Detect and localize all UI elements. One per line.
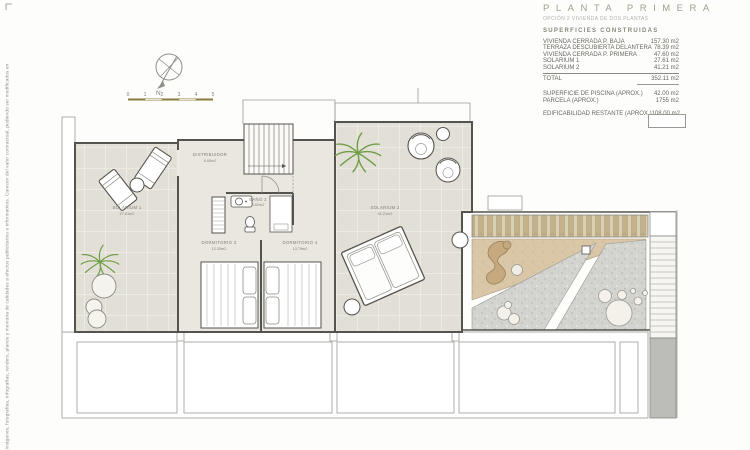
table-row: SOLARIUM 2 41.21 m2 [543,65,679,71]
solarium2-room: SOLARIUM 2 41.21m2 [335,122,472,332]
lower-floor-outline [62,332,648,418]
scale-bar: 0 1 2 3 4 5 [127,92,215,101]
areas-table-header: SUPERFICIES CONSTRUIDAS [543,28,743,34]
drain-box [582,246,590,254]
total-row: TOTAL 352.11 m2 [543,76,679,82]
sheet-title: PLANTA PRIMERA [543,3,743,14]
room-area: 27.61m2 [120,212,135,216]
side-table [344,299,360,315]
round-lounger [436,158,460,182]
room-area: 13.79m2 [293,247,308,251]
interior-block: DISTRIBUIDOR 5.00m2 BAÑO 2 3.52m2 [177,124,336,332]
legend-box [648,114,686,128]
wardrobe [212,197,225,233]
total-underline [637,84,679,85]
bed-dormitorio3 [201,262,258,328]
room-label: DORMITORIO 3 [201,240,236,245]
svg-text:3: 3 [178,92,181,98]
bed-dormitorio4 [264,262,321,328]
side-table [130,178,144,192]
crop-mark [6,4,12,10]
room-label: SOLARIUM 2 [370,205,399,210]
room-label: BAÑO 2 [249,197,267,202]
compass-icon: N [156,54,182,97]
shower [270,196,292,232]
room-label: DORMITORIO 4 [282,240,317,245]
sliding-door-opening [177,150,179,176]
room-area: 5.00m2 [204,159,217,163]
table-divider [543,73,679,74]
svg-text:0: 0 [127,92,130,98]
svg-text:2: 2 [161,92,164,98]
solarium1-room: SOLARIUM 1 27.61m2 [75,143,178,332]
table-row: PARCELA (APROX.) 1755 m2 [543,98,679,104]
floor-plan-sheet: Imágenes, fotografías, infografías, rend… [0,0,750,450]
side-table [452,232,468,248]
sheet-subtitle: OPCIÓN 2 VIVIENDA DE DOS PLANTAS [543,16,743,22]
round-lounger [408,133,434,159]
room-area: 41.21m2 [378,212,393,216]
svg-text:4: 4 [195,92,198,98]
svg-text:1: 1 [144,92,147,98]
room-area: 12.20m2 [212,247,227,251]
title-block: PLANTA PRIMERA OPCIÓN 2 VIVIENDA DE DOS … [543,3,743,118]
room-label: DISTRIBUIDOR [193,152,227,157]
terrace-garden [462,212,676,330]
svg-text:5: 5 [212,92,215,98]
exterior-staircase [650,212,676,418]
room-area: 3.52m2 [252,203,265,207]
side-table [437,128,450,141]
wood-deck [472,215,648,237]
room-label: SOLARIUM 1 [112,205,141,210]
boulder [512,265,523,276]
areas-table: VIVIENDA CERRADA P. BAJA 157.30 m2 TERRA… [543,39,679,118]
staircase [244,124,293,174]
toilet [246,217,255,228]
garden-sculpture [503,241,511,249]
